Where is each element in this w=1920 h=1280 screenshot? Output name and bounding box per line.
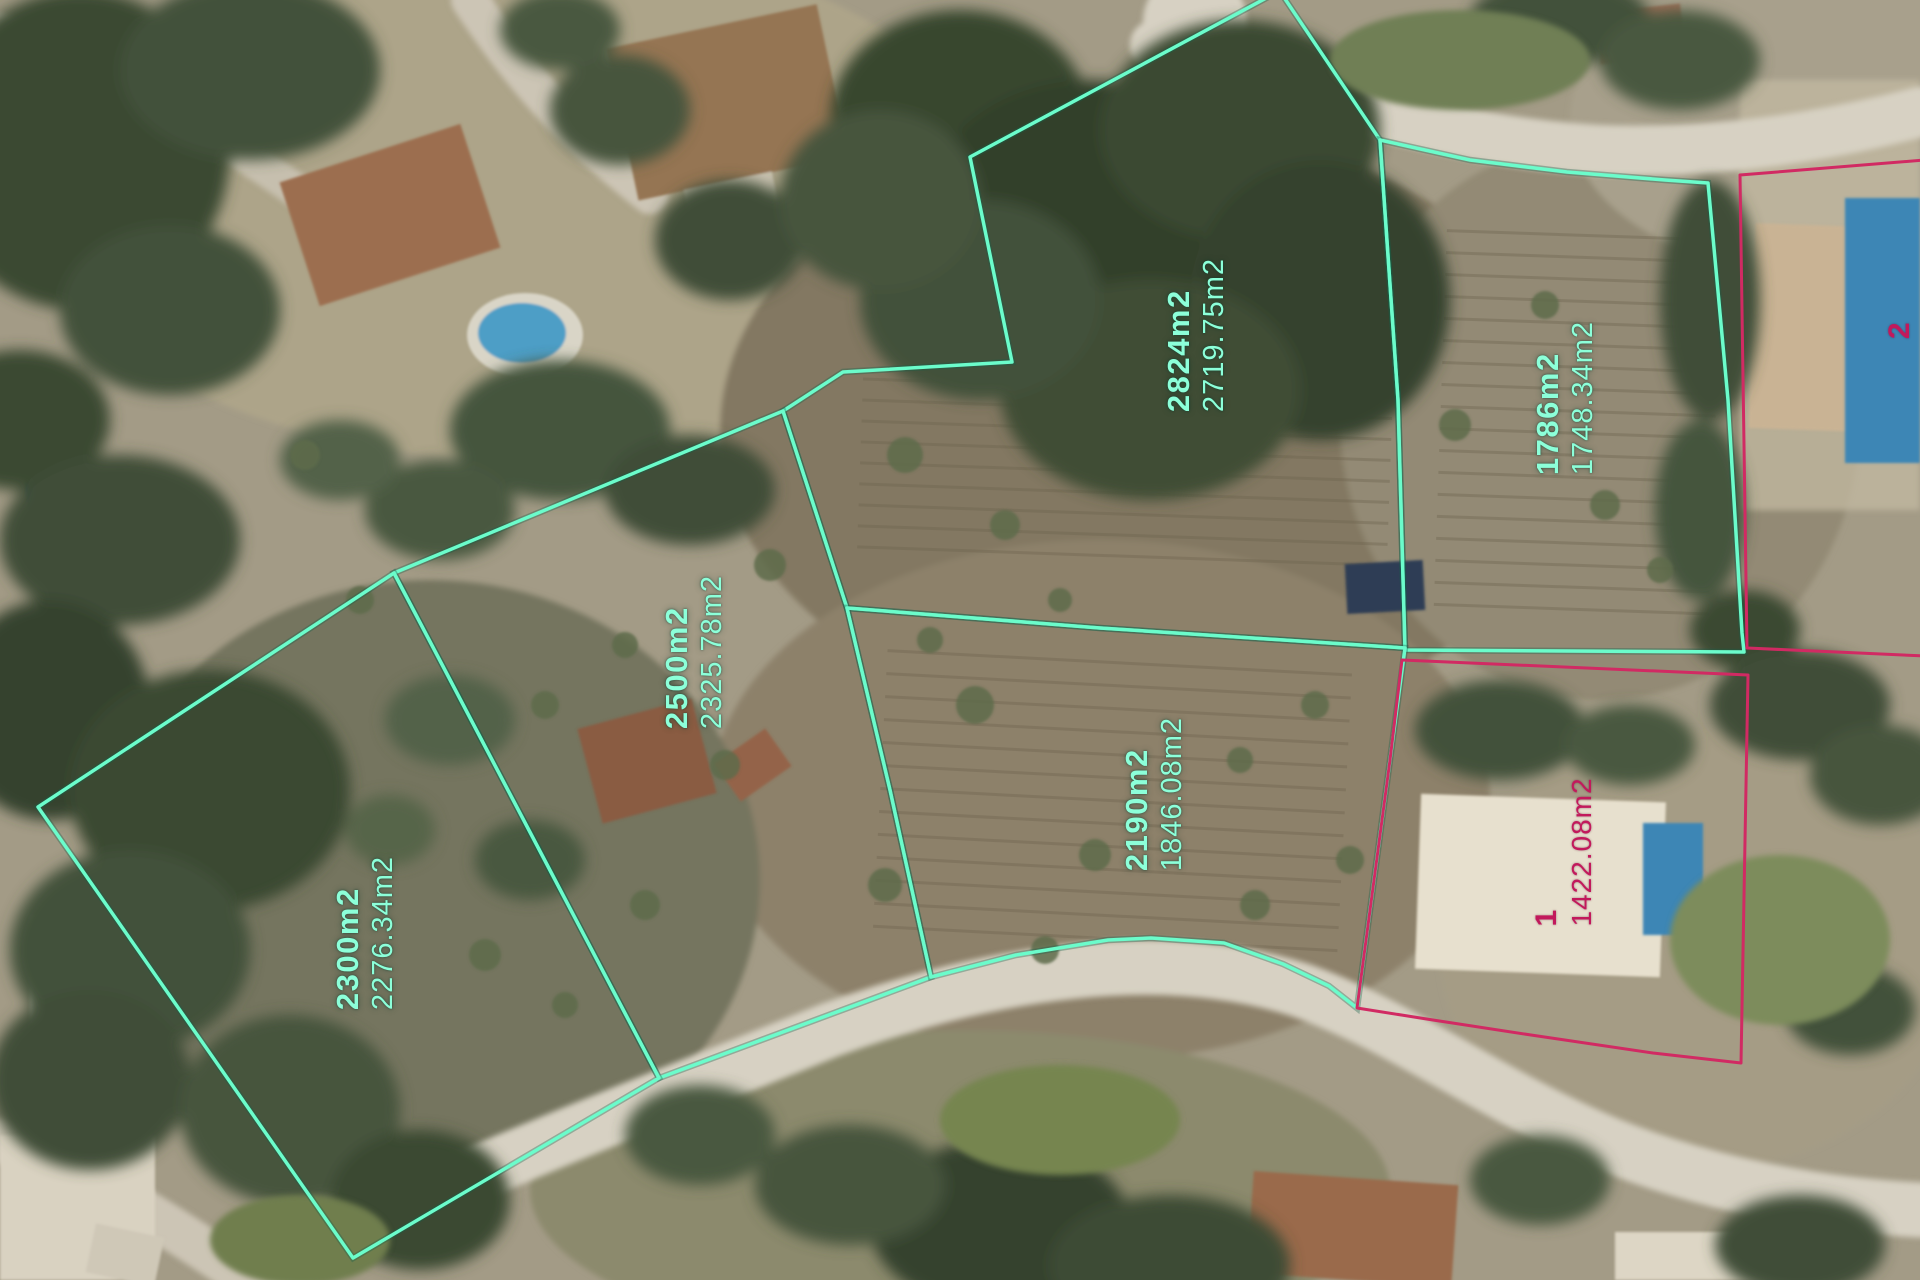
parcel-label-2824-area: 2719.75m2 bbox=[1197, 258, 1232, 412]
parcel-label-1786-area: 1748.34m2 bbox=[1566, 321, 1601, 475]
parcel-label-2500-area: 2325.78m2 bbox=[695, 575, 730, 729]
parcel-label-2824: 2824m22719.75m2 bbox=[1160, 258, 1232, 412]
pink-parcel-label-2-number: 2 bbox=[1882, 321, 1918, 339]
pink-parcel-label-2: 2 bbox=[1882, 321, 1918, 339]
parcel-label-2300: 2300m22276.34m2 bbox=[329, 856, 401, 1010]
parcel-outline-2824 bbox=[783, 0, 1405, 648]
pink-parcel-label-1-area: 1422.08m2 bbox=[1565, 777, 1599, 926]
pink-parcel-label-1: 11422.08m2 bbox=[1529, 777, 1599, 926]
pink-parcel-label-1-number: 1 bbox=[1529, 908, 1565, 926]
parcel-outline-2500-halo bbox=[394, 411, 931, 1078]
parcel-label-2190-area: 1846.08m2 bbox=[1155, 717, 1190, 871]
parcel-label-2500: 2500m22325.78m2 bbox=[658, 575, 730, 729]
parcel-overlay bbox=[0, 0, 1920, 1280]
parcel-label-2824-number: 2824m2 bbox=[1160, 289, 1197, 412]
parcel-label-2190-number: 2190m2 bbox=[1118, 748, 1155, 871]
parcel-outline-2824-halo bbox=[783, 0, 1405, 648]
parcel-label-2300-area: 2276.34m2 bbox=[366, 856, 401, 1010]
pink-parcel-outline-2 bbox=[1740, 160, 1920, 656]
parcel-outline-2500 bbox=[394, 411, 931, 1078]
parcel-label-2190: 2190m21846.08m2 bbox=[1118, 717, 1190, 871]
parcel-label-1786-number: 1786m2 bbox=[1529, 352, 1566, 475]
parcel-label-1786: 1786m21748.34m2 bbox=[1529, 321, 1601, 475]
aerial-map-view: 2824m22719.75m21786m21748.34m22500m22325… bbox=[0, 0, 1920, 1280]
parcel-label-2300-number: 2300m2 bbox=[329, 887, 366, 1010]
parcel-label-2500-number: 2500m2 bbox=[658, 606, 695, 729]
